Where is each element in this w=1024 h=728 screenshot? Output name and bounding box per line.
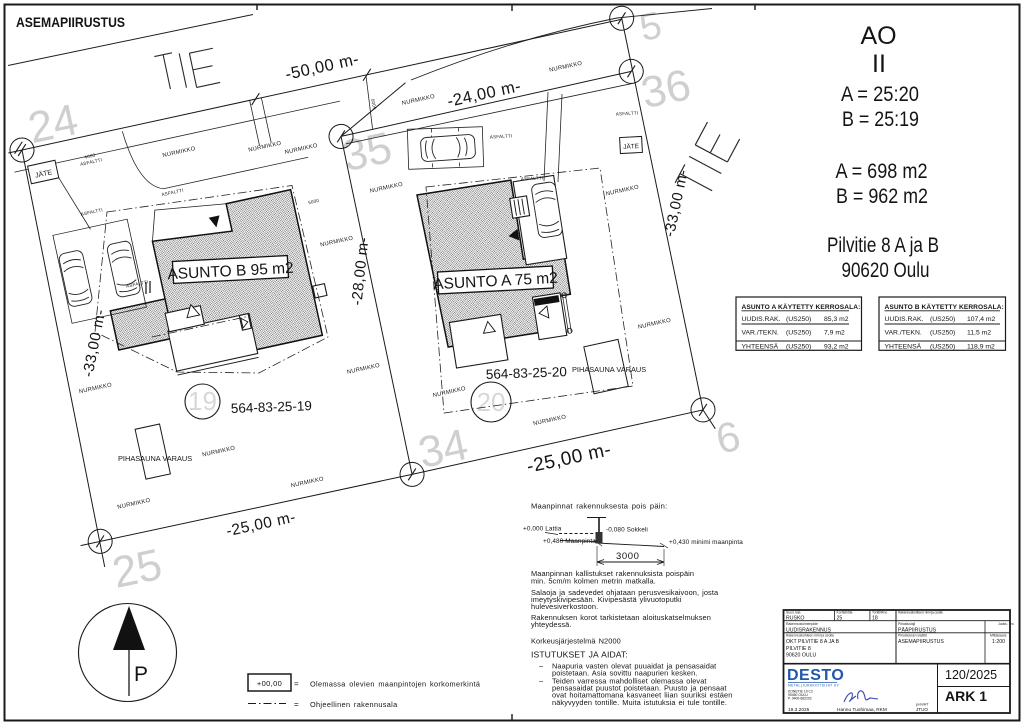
svg-text:NURMIKKO: NURMIKKO [290,476,324,489]
svg-text:YHTEENSÄ: YHTEENSÄ [885,343,922,351]
svg-text:NURMIKKO: NURMIKKO [605,184,639,197]
svg-text:AO: AO [860,22,896,50]
svg-text:(US250): (US250) [786,316,811,323]
svg-text:ASFALTTI: ASFALTTI [616,110,639,116]
svg-text:107,4 m2: 107,4 m2 [967,316,996,323]
svg-text:NURMIKKO: NURMIKKO [401,94,435,107]
svg-text:NURMIKKO: NURMIKKO [284,143,318,156]
svg-text:(US250): (US250) [930,330,955,337]
svg-text:RUSKO: RUSKO [786,615,804,621]
svg-text:(US250): (US250) [786,330,811,337]
svg-text:90620 OULU: 90620 OULU [786,653,817,659]
svg-text:(US250): (US250) [930,344,955,351]
svg-text:A = 698 m2: A = 698 m2 [836,160,928,183]
svg-text:Maanpinnat rakennuksesta poi: Maanpinnat rakennuksesta pois päin: [531,502,667,511]
svg-text:ISTUTUKSET JA AIDAT:: ISTUTUKSET JA AIDAT: [531,650,628,660]
svg-text:P: P [134,663,148,686]
svg-text:–: – [539,662,544,671]
svg-text:Rakennuskohteen nimi ja osoite: Rakennuskohteen nimi ja osoite [786,633,834,637]
svg-text:YHTEENSÄ: YHTEENSÄ [742,343,779,351]
svg-text:hulevesiverkostoon.: hulevesiverkostoon. [531,602,598,611]
svg-text:P. 0400-682202: P. 0400-682202 [788,697,812,701]
svg-text:VAR./TEKN.: VAR./TEKN. [885,330,922,337]
svg-text:pvm/HT: pvm/HT [916,703,929,707]
svg-text:NURMIKKO: NURMIKKO [432,386,466,399]
svg-text:-0,080 Sokkeli: -0,080 Sokkeli [606,527,648,534]
svg-text:min. 5cm/m kolmen metrin m: min. 5cm/m kolmen metrin matkalla. [531,577,656,586]
svg-text:5000: 5000 [370,98,377,110]
svg-text:ASEMAPIIRUSTUS: ASEMAPIIRUSTUS [16,14,125,30]
svg-text:564-83-25-19: 564-83-25-19 [231,398,313,416]
svg-text:PÄÄPIIRUSTUS: PÄÄPIIRUSTUS [898,626,937,633]
svg-text:NURMIKKO: NURMIKKO [346,363,380,376]
svg-text:85,3 m2: 85,3 m2 [824,316,849,323]
svg-text:NURMIKKO: NURMIKKO [78,382,112,395]
svg-text:DESTO: DESTO [787,667,844,684]
svg-text:19.3.2025: 19.3.2025 [788,707,810,713]
svg-text:7,9 m2: 7,9 m2 [824,330,845,337]
svg-text:-25,00 m-: -25,00 m- [225,509,298,540]
svg-text:+0,430 minimi maanpinta: +0,430 minimi maanpinta [669,539,743,546]
svg-text:=: = [294,700,299,709]
svg-text:3000: 3000 [616,551,640,562]
svg-text:UUDIS.RAK.: UUDIS.RAK. [885,316,924,323]
svg-text:-24,00 m-: -24,00 m- [446,77,523,111]
svg-text:NURMIKKO: NURMIKKO [533,414,567,427]
svg-text:11,5 m2: 11,5 m2 [967,330,991,337]
svg-text:Mittakaava: Mittakaava [990,633,1007,637]
svg-text:UUDIS.RAK.: UUDIS.RAK. [742,316,781,323]
svg-text:NURMIKKO: NURMIKKO [549,61,583,74]
svg-text:NURMIKKO: NURMIKKO [202,445,236,458]
svg-text:Korkeusjärjestelmä N2000: Korkeusjärjestelmä N2000 [531,637,621,646]
svg-text:PILVITIE 8: PILVITIE 8 [786,646,811,652]
svg-text:120/2025: 120/2025 [945,668,997,682]
svg-text:Suun./ala: Suun./ala [786,611,800,615]
svg-text:-28,00 m-: -28,00 m- [348,236,372,306]
svg-text:Rakennuskohteen nimi ja osoite: Rakennuskohteen nimi ja osoite [898,611,943,615]
svg-text:ASUNTO A KÄYTETTY KERROSALA:: ASUNTO A KÄYTETTY KERROSALA: [742,303,861,311]
svg-text:B = 25:19: B = 25:19 [842,108,919,131]
svg-text:Ohjeellinen rakennusala: Ohjeellinen rakennusala [310,700,398,709]
svg-text:ASUNTO B KÄYTETTY KERROSALA:: ASUNTO B KÄYTETTY KERROSALA: [885,303,1004,311]
svg-text:ARK 1: ARK 1 [945,688,987,704]
svg-text:25: 25 [837,615,843,621]
svg-text:NURMIKKO: NURMIKKO [162,146,196,159]
svg-text:A = 25:20: A = 25:20 [841,83,919,106]
svg-text:OKT PILVITIE 8 A JA B: OKT PILVITIE 8 A JA B [786,639,840,645]
svg-text:1:200: 1:200 [992,639,1005,645]
svg-text:B = 962 m2: B = 962 m2 [836,185,928,208]
svg-text:Pilvitie 8 A ja B: Pilvitie 8 A ja B [827,234,939,257]
svg-text:Tontti/Rno: Tontti/Rno [872,611,887,615]
svg-text:NURMIKKO: NURMIKKO [320,235,354,248]
svg-text:118,9 m2: 118,9 m2 [967,344,995,351]
svg-text:NURMIKKO: NURMIKKO [638,318,672,331]
svg-text:yhteydessä.: yhteydessä. [531,620,572,629]
svg-text:Piirustuslaji: Piirustuslaji [898,622,915,626]
svg-text:näkyvyyden tontille. Muita: näkyvyyden tontille. Muita istutuksia ei… [552,698,727,707]
svg-text:6: 6 [712,412,745,463]
svg-text:Olemassa olevien maanpintojen: Olemassa olevien maanpintojen korkomerki… [310,680,481,689]
svg-text:NURMIKKO: NURMIKKO [369,182,403,195]
svg-text:PIHASAUNA VARAUS: PIHASAUNA VARAUS [118,454,192,463]
svg-text:-25,00 m-: -25,00 m- [525,439,613,477]
svg-text:Piirustuksen sisältö: Piirustuksen sisältö [898,633,927,637]
svg-text:+00,00: +00,00 [257,679,282,688]
svg-text:NURMIKKO: NURMIKKO [248,141,282,154]
svg-text:36: 36 [637,60,695,118]
svg-text:–: – [539,677,544,686]
svg-text:JÄTE: JÄTE [623,142,640,151]
svg-text:VAR./TEKN.: VAR./TEKN. [742,330,779,337]
svg-text:18: 18 [872,615,878,621]
svg-text:ASFALTTI: ASFALTTI [161,188,184,198]
svg-text:564-83-25-20: 564-83-25-20 [486,364,568,382]
svg-text:90620 Oulu: 90620 Oulu [842,259,930,282]
svg-text:5000: 5000 [308,198,320,205]
svg-text:Kortteli/tila: Kortteli/tila [837,611,853,615]
svg-text:II: II [872,50,886,78]
svg-text:-33,00 m-: -33,00 m- [80,308,110,379]
svg-text:(US250): (US250) [786,344,811,351]
svg-text:19: 19 [188,386,217,416]
svg-text:=: = [294,680,299,689]
svg-text:NURMIKKO: NURMIKKO [117,498,151,511]
svg-text:Rakennustoimenpide: Rakennustoimenpide [786,622,818,626]
svg-text:JTUO: JTUO [916,707,928,712]
svg-text:ASEMAPIIRUSTUS: ASEMAPIIRUSTUS [898,639,944,645]
svg-text:-33,00 m-: -33,00 m- [661,168,692,239]
svg-text:ASFALTTI: ASFALTTI [80,207,103,217]
svg-text:20: 20 [477,387,506,417]
svg-text:+0,480 Maanpinta: +0,480 Maanpinta [543,538,596,545]
svg-text:Juoks. nro: Juoks. nro [998,622,1014,626]
svg-text:ASFALTTI: ASFALTTI [490,133,513,139]
svg-text:METALLIURAKOITSIJAT OY: METALLIURAKOITSIJAT OY [788,683,840,687]
svg-text:ASFALTTI: ASFALTTI [80,157,103,167]
svg-text:93,2 m2: 93,2 m2 [824,344,849,351]
svg-text:PIHASAUNA VARAUS: PIHASAUNA VARAUS [572,365,646,374]
svg-text:UUDISRAKENNUS: UUDISRAKENNUS [786,627,832,633]
svg-text:+0.000 Lattia: +0.000 Lattia [523,526,562,533]
svg-text:25: 25 [108,540,166,598]
svg-text:Hannu Tuohimaa, RKM: Hannu Tuohimaa, RKM [837,707,887,713]
svg-text:(US250): (US250) [930,316,955,323]
svg-text:5: 5 [636,4,665,49]
